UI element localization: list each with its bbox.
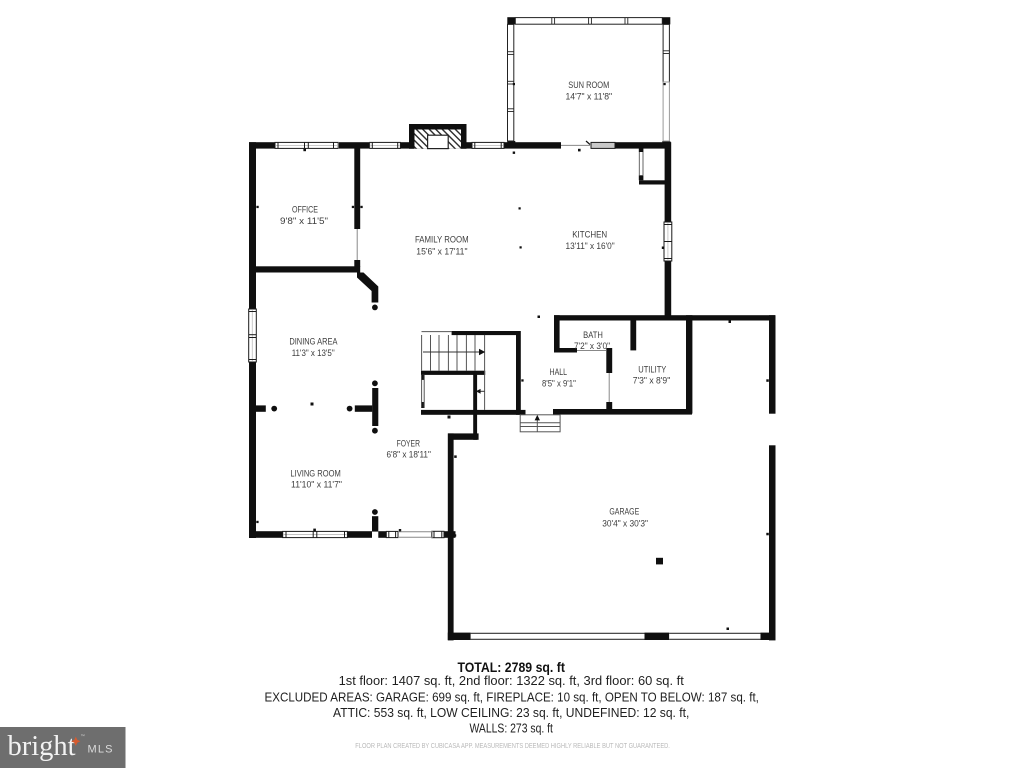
- svg-text:9'8" x 11'5": 9'8" x 11'5": [280, 215, 328, 226]
- svg-text:15'6" x 17'11": 15'6" x 17'11": [416, 245, 467, 256]
- svg-text:bright: bright: [8, 731, 76, 762]
- svg-text:7'3" x 8'9": 7'3" x 8'9": [633, 374, 671, 385]
- svg-text:WALLS: 273 sq. ft: WALLS: 273 sq. ft: [469, 720, 553, 735]
- svg-text:1st floor: 1407 sq. ft, 2nd fl: 1st floor: 1407 sq. ft, 2nd floor: 1322 …: [339, 673, 685, 688]
- svg-text:FLOOR PLAN CREATED BY CUBICASA: FLOOR PLAN CREATED BY CUBICASA APP. MEAS…: [355, 743, 670, 750]
- svg-text:GARAGE: GARAGE: [609, 507, 639, 518]
- svg-text:11'3" x 13'5": 11'3" x 13'5": [292, 347, 335, 358]
- svg-text:EXCLUDED AREAS: GARAGE: 699 sq: EXCLUDED AREAS: GARAGE: 699 sq. ft, FIRE…: [265, 689, 759, 704]
- svg-text:13'11" x 16'0": 13'11" x 16'0": [566, 240, 615, 251]
- svg-text:FAMILY ROOM: FAMILY ROOM: [415, 235, 469, 246]
- svg-text:™: ™: [81, 734, 86, 739]
- svg-text:11'10" x 11'7": 11'10" x 11'7": [291, 478, 342, 489]
- svg-text:7'2" x 3'0": 7'2" x 3'0": [574, 340, 610, 351]
- svg-text:MLS: MLS: [88, 744, 114, 756]
- svg-text:14'7" x 11'8": 14'7" x 11'8": [566, 90, 613, 101]
- svg-text:ATTIC: 553 sq. ft, LOW CEILING: ATTIC: 553 sq. ft, LOW CEILING: 23 sq. f…: [333, 705, 689, 720]
- svg-text:30'4" x 30'3": 30'4" x 30'3": [602, 518, 648, 529]
- svg-text:8'5" x 9'1": 8'5" x 9'1": [542, 377, 576, 388]
- svg-text:6'8" x 18'11": 6'8" x 18'11": [386, 448, 431, 459]
